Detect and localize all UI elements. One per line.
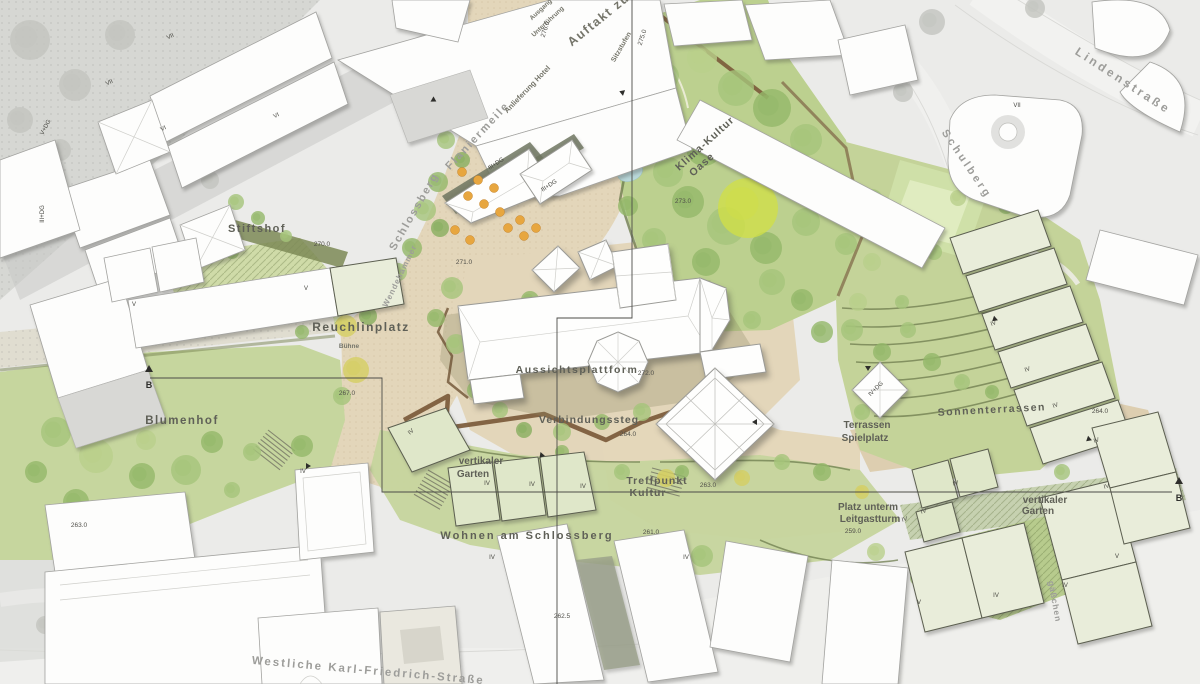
elevation-label-2: 273.0 <box>675 198 692 205</box>
storey-label-5: III+DG <box>40 205 46 223</box>
storey-label-28: IV <box>300 469 306 475</box>
place-label-treffpunkt: Treffpunkt <box>626 475 687 487</box>
elevation-label-11: 262.5 <box>554 613 571 620</box>
elevation-label-4: 270.0 <box>314 241 331 248</box>
place-label-platz-unterm: Platz unterm <box>838 502 898 513</box>
elevation-label-7: 264.0 <box>620 431 637 438</box>
elevation-label-10: 263.0 <box>71 522 88 529</box>
storey-label-7: V <box>304 286 308 292</box>
storey-label-26: IV <box>580 484 586 490</box>
elevation-label-13: 259.0 <box>845 528 862 535</box>
place-label-treffpunkt-kultur: Kultur <box>630 487 667 499</box>
place-label-terrassen-spielplatz: Spielplatz <box>842 433 889 444</box>
storey-label-6: V <box>132 302 136 308</box>
annotation-label-buehne: Bühne <box>339 343 360 350</box>
site-plan-stage: LindenstraßeSchulbergWestliche Karl-Frie… <box>0 0 1200 684</box>
elevation-label-6: 267.0 <box>339 390 356 397</box>
place-label-blumenhof: Blumenhof <box>145 415 219 427</box>
place-label-stiftshof: Stiftshof <box>228 223 286 235</box>
place-label-vertikaler-garten-ost-1: vertikaler <box>1023 495 1068 506</box>
elevation-label-8: 264.0 <box>1092 408 1109 415</box>
site-plan-svg: LindenstraßeSchulbergWestliche Karl-Frie… <box>0 0 1200 684</box>
place-label-verbindungssteg: Verbindungssteg <box>539 414 639 426</box>
storey-label-20: V <box>1115 554 1119 560</box>
elevation-label-12: 261.0 <box>643 529 660 536</box>
place-label-vertikaler-garten-west-1: vertikaler <box>459 456 504 467</box>
storey-label-21: IV <box>1062 583 1068 589</box>
place-label-terrassen: Terrassen <box>843 420 890 431</box>
storey-label-25: IV <box>529 482 535 488</box>
storey-label-30: IV <box>683 555 689 561</box>
place-label-leitgastturm: Leitgastturm <box>840 514 901 525</box>
storey-label-24: IV <box>484 481 490 487</box>
place-label-vertikaler-garten-ost-2: Garten <box>1022 506 1054 517</box>
elevation-label-5: 272.0 <box>638 370 655 377</box>
place-label-vertikaler-garten-west-2: Garten <box>457 469 489 480</box>
section-marker-label-0: B <box>146 380 153 390</box>
storey-label-23: V <box>917 600 921 606</box>
storey-label-10: VII <box>1013 103 1021 109</box>
place-label-aussichtsplattform: Aussichtsplattform <box>516 364 639 376</box>
elevation-label-9: 263.0 <box>700 482 717 489</box>
place-label-reuchlinplatz: Reuchlinplatz <box>312 320 410 334</box>
storey-label-22: IV <box>993 593 999 599</box>
storey-label-29: IV <box>489 555 495 561</box>
place-label-wohnen-am-schlossberg: Wohnen am Schlossberg <box>440 530 613 542</box>
elevation-label-3: 271.0 <box>456 259 473 266</box>
section-marker-label-1: B <box>1176 493 1183 503</box>
